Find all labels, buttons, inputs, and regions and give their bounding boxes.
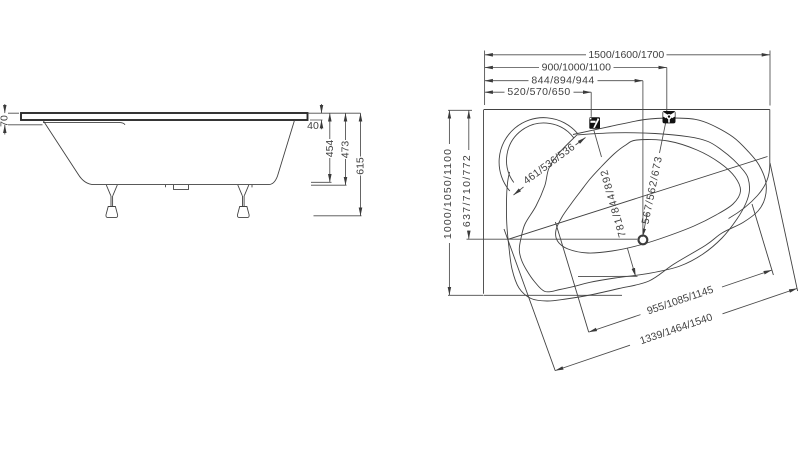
svg-text:615: 615 — [355, 157, 367, 175]
svg-text:1500/1600/1700: 1500/1600/1700 — [588, 49, 664, 61]
svg-text:473: 473 — [340, 141, 352, 159]
svg-text:1000/1050/1100: 1000/1050/1100 — [442, 148, 454, 239]
svg-text:781/844/892: 781/844/892 — [598, 167, 629, 238]
svg-text:40: 40 — [307, 120, 319, 132]
svg-text:70: 70 — [0, 115, 11, 127]
svg-text:844/894/944: 844/894/944 — [531, 75, 594, 87]
svg-text:461/536/536: 461/536/536 — [521, 141, 577, 187]
svg-text:637/710/772: 637/710/772 — [461, 154, 473, 227]
svg-text:454: 454 — [324, 140, 336, 158]
svg-text:520/570/650: 520/570/650 — [507, 86, 570, 98]
svg-text:900/1000/1100: 900/1000/1100 — [542, 62, 611, 74]
